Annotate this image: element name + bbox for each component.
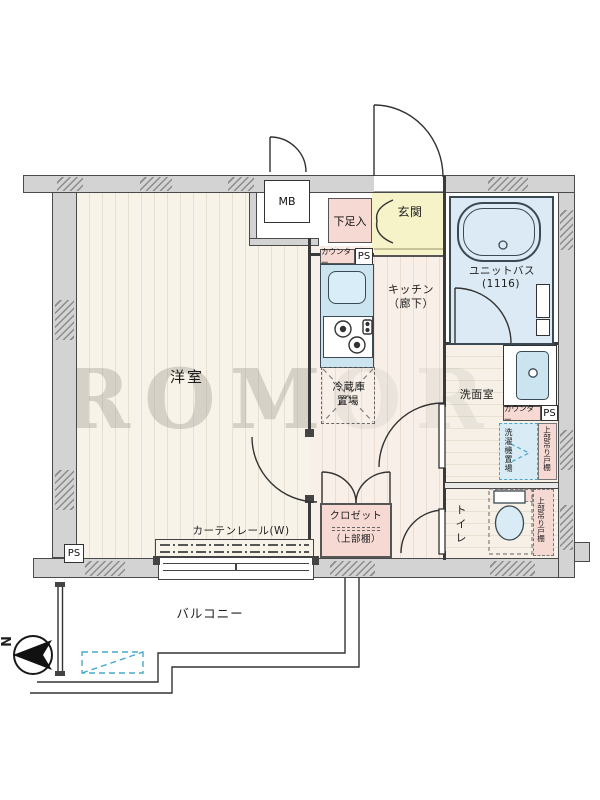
stove-burner-center	[355, 343, 360, 348]
laundry-label: 洗濯機置場	[504, 428, 512, 473]
genkan-label: 玄関	[397, 206, 422, 219]
living-door-arc	[252, 437, 317, 502]
toilet-label: トイレ	[455, 504, 466, 546]
closet-label: クロゼット	[330, 511, 383, 522]
toilet-door-leaf	[439, 509, 445, 554]
closet-door-arc-right	[356, 472, 390, 503]
toilet-bowl	[496, 506, 524, 540]
stove-burner-center	[341, 327, 346, 332]
balcony-label: バルコニー	[176, 607, 243, 621]
closet-shelf-label: （上部棚）	[331, 535, 381, 545]
partition-cap	[55, 582, 65, 587]
fridge-label-2: 置場	[337, 396, 359, 408]
kitchen-label-1: キッチン	[388, 284, 434, 296]
washroom-door-arc	[379, 403, 443, 467]
compass-north-label: N	[1, 635, 15, 646]
closet-door-arc-left	[322, 472, 356, 503]
plan-linework	[0, 0, 600, 800]
washroom-door-leaf	[439, 404, 445, 468]
balcony-edge-outer	[30, 578, 359, 693]
toilet-tank	[494, 491, 525, 503]
curtain-rail-label: カーテンレール(W)	[192, 526, 289, 538]
entrance-door-arc	[374, 105, 443, 177]
toilet-door-arc	[401, 510, 444, 553]
genkan-folding-door	[377, 200, 393, 243]
partition-cap	[55, 671, 65, 676]
floor-plan: ROM OR MB 下足入 カウンター PS	[0, 0, 600, 800]
cupboard-toilet-label: 上部吊り戸棚	[537, 497, 545, 542]
mb-door-arc	[270, 137, 306, 172]
fridge-label-1: 冷蔵庫	[333, 382, 366, 394]
stove-knob	[366, 323, 369, 326]
cupboard-washroom-label: 上部吊り戸棚	[543, 426, 551, 471]
bathtub-drain	[499, 241, 507, 249]
evacuation-hatch-diagonal	[82, 652, 143, 673]
unit-bath-label: ユニットバス	[469, 266, 535, 278]
living-room-label: 洋室	[170, 369, 204, 386]
laundry-mark	[511, 444, 529, 462]
bath-door-arc	[455, 288, 511, 343]
kitchen-label-2: （廊下）	[388, 298, 434, 310]
basin-faucet	[529, 369, 537, 377]
washroom-label: 洗面室	[460, 389, 495, 401]
unit-bath-size: (1116)	[482, 279, 520, 291]
stove-knob	[366, 329, 369, 332]
